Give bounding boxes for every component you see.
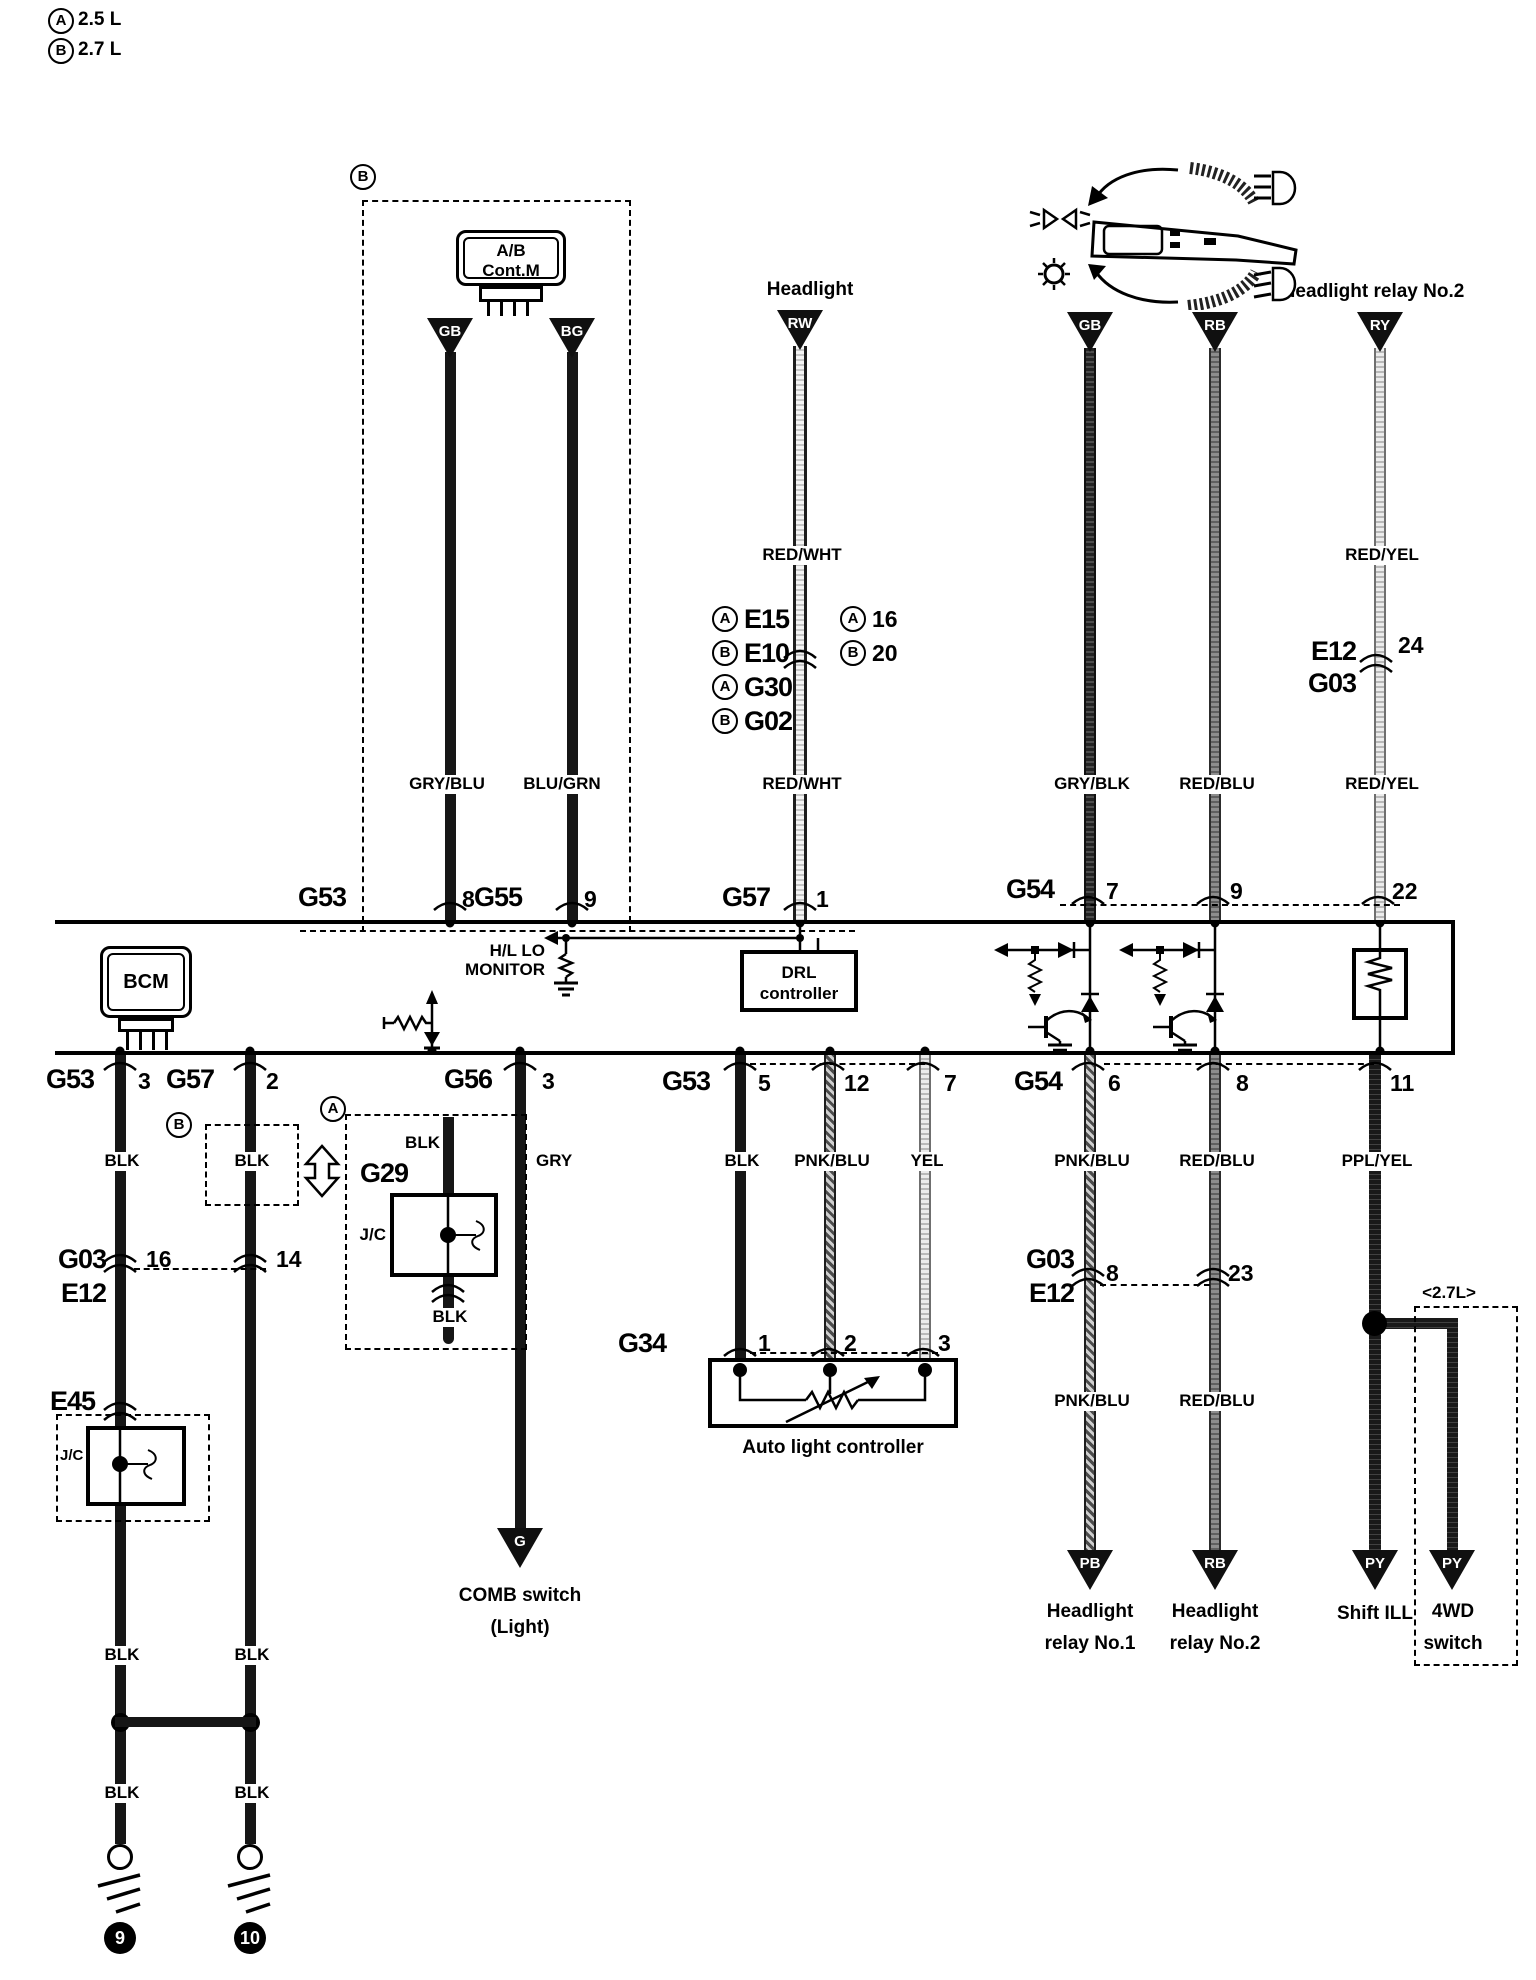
e45-name: E45 [50, 1388, 95, 1415]
ab-pin-tick [513, 302, 516, 316]
pin-mark [1360, 892, 1396, 906]
connector-g53b-pin3: 7 [944, 1072, 957, 1095]
e45-jc-label: J/C [60, 1448, 83, 1465]
wire-gry-blk [1084, 348, 1096, 922]
relay2-label-line2: relay No.2 [1155, 1634, 1275, 1655]
wire-red-wht [793, 346, 807, 922]
splice-mid-letter2: B [712, 640, 738, 666]
ab-pin-tick [526, 302, 529, 316]
splice-mid-name3: G30 [744, 674, 792, 701]
comb-switch-label-line2: (Light) [458, 1618, 582, 1639]
ground-junction-bar [115, 1717, 256, 1727]
connector-g56-pin: 3 [542, 1070, 555, 1093]
connector-g53-row2: G53 [46, 1066, 94, 1093]
hl-lo-line2: MONITOR [465, 960, 545, 979]
pin-mark [810, 1344, 846, 1358]
splice-left-bracket [134, 1268, 266, 1270]
g29-name: G29 [360, 1160, 408, 1187]
connector-g53-row2-pin: 3 [138, 1070, 151, 1093]
terminal-gb-right: GB [1067, 312, 1113, 352]
ground-ring-terminal-1 [107, 1844, 133, 1870]
pin-mark [1070, 1058, 1106, 1072]
pin-mark [905, 1344, 941, 1358]
bcm-pin-tick [139, 1032, 142, 1050]
connector-g54-row2: G54 [1014, 1068, 1062, 1095]
splice-right-line1: G03 [1012, 1246, 1074, 1273]
wire-label-pnk-blu-r1: PNK/BLU [1048, 1152, 1136, 1171]
hl-lo-monitor-label: H/L LO MONITOR [440, 942, 545, 979]
ab-pin-tick [487, 302, 490, 316]
variant-b-small-dashed-box [205, 1124, 299, 1206]
wire-blk-autolight [735, 1055, 746, 1372]
g29-blk-top-label: BLK [386, 1134, 442, 1153]
connector-g56: G56 [444, 1066, 492, 1093]
pin-mark [502, 1058, 538, 1072]
splice-mid-name4: G02 [744, 708, 792, 735]
wire-label-gry: GRY [536, 1152, 572, 1171]
splice-mark [232, 1252, 268, 1274]
splice-mid-letter4: B [712, 708, 738, 734]
e45-jc-internal [86, 1426, 186, 1506]
headlight-heading: Headlight [750, 280, 870, 301]
g29-jc-label: J/C [346, 1226, 386, 1245]
splice-mark [430, 1282, 466, 1304]
connector-g57-row2-pin: 2 [266, 1070, 279, 1093]
connector-g34: G34 [618, 1330, 666, 1357]
wire-label-ppl-yel: PPL/YEL [1333, 1152, 1421, 1171]
wire-label-red-yel-upper: RED/YEL [1338, 546, 1426, 565]
drl-controller-box: DRL controller [740, 950, 858, 1012]
splice-mid-pin2: 20 [872, 642, 898, 665]
combination-switch-icon [1028, 160, 1348, 310]
wire-label-pnk-blu-a2: PNK/BLU [788, 1152, 876, 1171]
wire-label-gry-blu: GRY/BLU [403, 775, 491, 794]
comb-switch-label-line1: COMB switch [458, 1586, 582, 1607]
wire-label-blk-l2b: BLK [225, 1646, 279, 1665]
connector-g53-row1: G53 [298, 884, 346, 911]
ground-ring-terminal-2 [237, 1844, 263, 1870]
g29-blk-bottom-label: BLK [418, 1308, 482, 1327]
splice-mark [1358, 652, 1394, 674]
terminal-g-comb: G [497, 1528, 543, 1568]
g29-jc-internal [390, 1193, 498, 1277]
pin-mark [905, 1058, 941, 1072]
wire-label-red-blu-r2: RED/BLU [1173, 1152, 1261, 1171]
wire-label-blk-a1: BLK [712, 1152, 772, 1171]
g29-wire-top [443, 1117, 454, 1195]
wire-red-yel [1374, 348, 1386, 922]
connector-g54-row1-pin1: 7 [1106, 880, 1119, 903]
connector-g53b-pin2: 12 [844, 1072, 870, 1095]
pin-mark [782, 898, 818, 912]
hl-lo-line1: H/L LO [490, 941, 545, 960]
auto-light-internal [708, 1358, 958, 1428]
relay1-label-line1: Headlight [1030, 1602, 1150, 1623]
wire-label-red-wht: RED/WHT [758, 775, 846, 794]
terminal-py-shift: PY [1352, 1550, 1398, 1590]
terminal-rw: RW [777, 310, 823, 350]
terminal-ry: RY [1357, 312, 1403, 352]
variant-b-small-circle: B [166, 1112, 192, 1138]
pin-mark [232, 1058, 268, 1072]
wire-yel-autolight [919, 1055, 931, 1372]
wire-pnk-blu-relay1 [1084, 1055, 1096, 1552]
splice-right-pin2: 23 [1228, 1262, 1254, 1285]
ground-symbol-1 [94, 1872, 146, 1920]
legend-a-circle: A [48, 8, 74, 34]
connector-g57-row2: G57 [166, 1066, 214, 1093]
wire-red-blu-relay2 [1209, 1055, 1221, 1552]
pin-mark [554, 898, 590, 912]
relay2-label-line1: Headlight [1155, 1602, 1275, 1623]
wire-label-blk-l2c: BLK [225, 1784, 279, 1803]
wire-label-red-blu-lower: RED/BLU [1173, 1392, 1261, 1411]
ab-cont-label-line2: Cont.M [482, 261, 540, 280]
connector-g54-row2-bracket [1104, 1063, 1374, 1065]
swap-arrow-icon [296, 1144, 348, 1198]
ab-cont-connector [479, 286, 543, 302]
legend-b-text: 2.7 L [78, 40, 121, 61]
bcm-connector [118, 1018, 174, 1032]
ab-pin-tick [500, 302, 503, 316]
splice-tr-line1: E12 [1294, 638, 1356, 665]
terminal-rb-bottom: RB [1192, 1550, 1238, 1590]
bcm-module-box: BCM [100, 946, 192, 1018]
bcm-pin-tick [126, 1032, 129, 1050]
bcm-label: BCM [123, 971, 169, 993]
fourwd-label-line2: switch [1417, 1634, 1489, 1655]
note-27l: <2.7L> [1404, 1284, 1494, 1303]
wiring-diagram-page: A 2.5 L B 2.7 L B A/B Cont.M GB BG RW GB… [0, 0, 1536, 1980]
wire-pnk-blu-autolight [824, 1055, 836, 1372]
pin-mark [1195, 892, 1231, 906]
relay1-label-line2: relay No.1 [1030, 1634, 1150, 1655]
splice-left-line2: E12 [44, 1280, 106, 1307]
pin-mark [102, 1058, 138, 1072]
shift-ill-label: Shift ILL [1308, 1604, 1442, 1625]
splice-mid-letter3: A [712, 674, 738, 700]
connector-g55: G55 [474, 884, 522, 911]
drl-label-line1: DRL [782, 963, 817, 982]
variant-b-circle: B [350, 164, 376, 190]
ground-symbol-2 [224, 1872, 276, 1920]
splice-mark [782, 648, 818, 670]
splice-mark [102, 1252, 138, 1274]
connector-g54-row1-pin2: 9 [1230, 880, 1243, 903]
splice-left-pin2: 14 [276, 1248, 302, 1271]
connector-g54-row2-pin3: 11 [1390, 1072, 1414, 1095]
pin-mark [1195, 1058, 1231, 1072]
variant-a-circle: A [320, 1096, 346, 1122]
ab-cont-label-line1: A/B [496, 241, 525, 260]
bcm-pin-tick [165, 1032, 168, 1050]
pin-mark [722, 1344, 758, 1358]
wire-label-red-blu: RED/BLU [1173, 775, 1261, 794]
wire-label-blk-l1: BLK [95, 1152, 149, 1171]
variant-b-dashed-box [362, 200, 631, 932]
splice-mid-pin2-letter: B [840, 640, 866, 666]
wire-red-blu-top [1209, 348, 1221, 922]
pin-mark [810, 1058, 846, 1072]
wire-label-blk-l1c: BLK [95, 1784, 149, 1803]
legend-a-text: 2.5 L [78, 10, 121, 31]
splice-right-pin1: 8 [1106, 1262, 1119, 1285]
terminal-rb-top: RB [1192, 312, 1238, 352]
ground-number-10: 10 [234, 1922, 266, 1954]
pin-mark [722, 1058, 758, 1072]
fourwd-label-line1: 4WD [1424, 1602, 1482, 1623]
wire-label-red-yel: RED/YEL [1338, 775, 1426, 794]
splice-mid-letter1: A [712, 606, 738, 632]
ground-number-9: 9 [104, 1922, 136, 1954]
wire-label-yel: YEL [898, 1152, 956, 1171]
wire-label-red-wht-upper: RED/WHT [758, 546, 846, 565]
splice-mid-pin1-letter: A [840, 606, 866, 632]
splice-right-bracket [1100, 1284, 1210, 1286]
wire-label-gry-blk: GRY/BLK [1048, 775, 1136, 794]
wire-label-blu-grn: BLU/GRN [518, 775, 606, 794]
splice-mid-pin1: 16 [872, 608, 898, 631]
connector-g53b-pin1: 5 [758, 1072, 771, 1095]
connector-g53b: G53 [662, 1068, 710, 1095]
pin-mark [1357, 1058, 1393, 1072]
splice-right-line2: E12 [1012, 1280, 1074, 1307]
auto-light-controller-label: Auto light controller [728, 1438, 938, 1459]
wire-ppl-yel [1369, 1055, 1381, 1552]
legend-b-circle: B [48, 38, 74, 64]
connector-g54-row2-pin2: 8 [1236, 1072, 1249, 1095]
pin-mark [432, 898, 468, 912]
splice-mid-name1: E15 [744, 606, 789, 633]
connector-g54-row1: G54 [1006, 876, 1054, 903]
junction-dot-ppl-yel [1362, 1311, 1387, 1336]
bcm-pin-tick [152, 1032, 155, 1050]
splice-tr-line2: G03 [1294, 670, 1356, 697]
drl-label-line2: controller [760, 984, 838, 1003]
splice-tr-pin: 24 [1398, 634, 1424, 657]
ab-cont-module-box: A/B Cont.M [456, 230, 566, 286]
terminal-pb: PB [1067, 1550, 1113, 1590]
pin-mark [1070, 892, 1106, 906]
wire-label-pnk-blu-lower: PNK/BLU [1048, 1392, 1136, 1411]
connector-g57-row1: G57 [722, 884, 770, 911]
splice-left-line1: G03 [44, 1246, 106, 1273]
wire-label-blk-l1b: BLK [95, 1646, 149, 1665]
connector-g54-row2-pin1: 6 [1108, 1072, 1121, 1095]
